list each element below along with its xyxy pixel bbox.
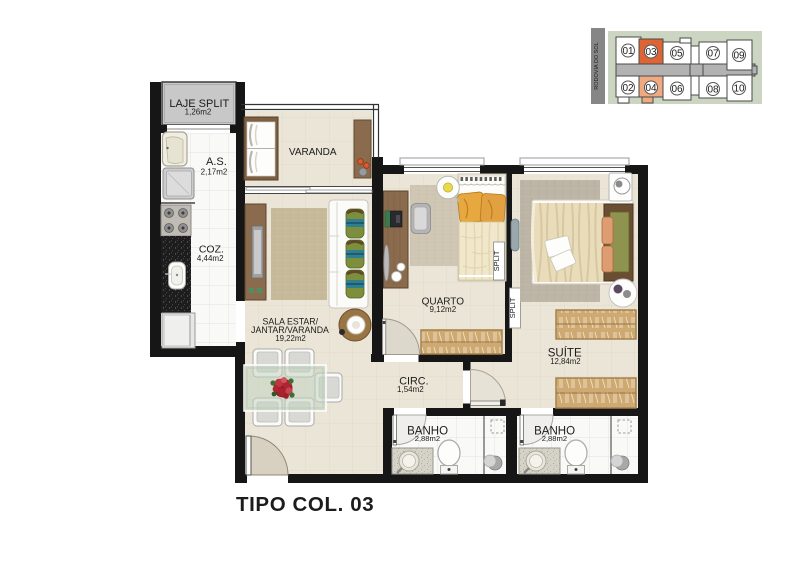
svg-text:1,26m2: 1,26m2: [185, 108, 212, 117]
svg-text:02: 02: [622, 83, 634, 94]
svg-text:RODOVIA DO SOL: RODOVIA DO SOL: [594, 42, 600, 89]
svg-text:19,22m2: 19,22m2: [275, 334, 305, 343]
svg-text:04: 04: [645, 83, 657, 94]
svg-text:9,12m2: 9,12m2: [429, 305, 456, 314]
svg-text:08: 08: [707, 85, 719, 96]
svg-text:03: 03: [645, 47, 657, 58]
svg-text:01: 01: [622, 46, 634, 57]
svg-text:2,88m2: 2,88m2: [542, 434, 567, 443]
svg-text:SPLIT: SPLIT: [508, 297, 517, 318]
svg-text:A.S.: A.S.: [206, 156, 227, 168]
svg-text:12,84m2: 12,84m2: [550, 357, 580, 366]
svg-text:TIPO COL. 03: TIPO COL. 03: [236, 493, 374, 516]
svg-text:1,54m2: 1,54m2: [397, 385, 424, 394]
svg-text:06: 06: [671, 84, 683, 95]
svg-text:VARANDA: VARANDA: [289, 147, 337, 158]
svg-text:09: 09: [733, 51, 745, 62]
svg-text:10: 10: [733, 84, 745, 95]
svg-text:4,44m2: 4,44m2: [197, 254, 224, 263]
svg-text:2,17m2: 2,17m2: [201, 168, 228, 177]
svg-text:SPLIT: SPLIT: [492, 250, 501, 271]
svg-text:2,88m2: 2,88m2: [415, 434, 440, 443]
svg-text:07: 07: [707, 49, 719, 60]
svg-text:05: 05: [671, 49, 683, 60]
